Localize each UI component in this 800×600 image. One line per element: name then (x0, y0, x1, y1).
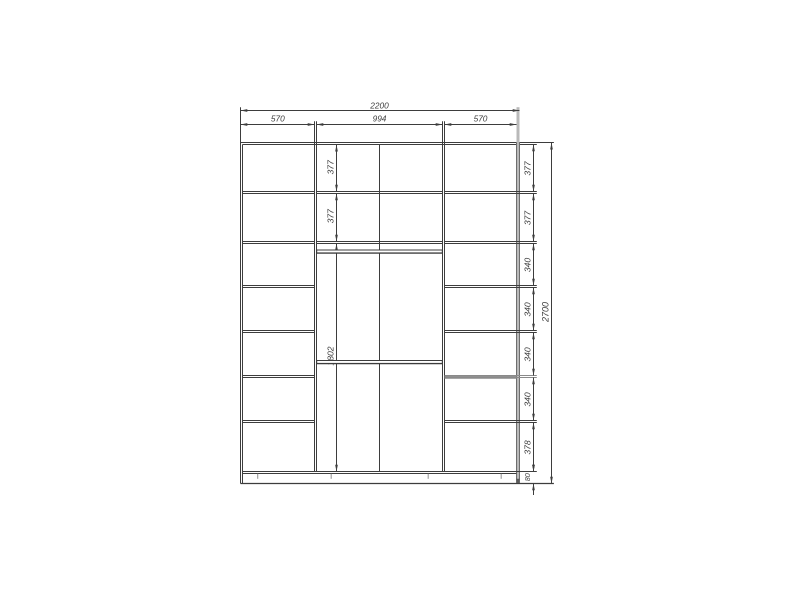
svg-text:570: 570 (474, 114, 488, 124)
svg-text:340: 340 (523, 347, 533, 362)
svg-text:340: 340 (523, 302, 533, 317)
svg-text:378: 378 (523, 440, 533, 455)
svg-text:340: 340 (523, 392, 533, 407)
svg-text:2200: 2200 (369, 100, 389, 110)
svg-text:80: 80 (523, 473, 532, 481)
svg-text:570: 570 (271, 114, 285, 124)
svg-text:340: 340 (523, 258, 533, 273)
svg-text:2700: 2700 (541, 302, 551, 323)
svg-text:377: 377 (325, 159, 335, 175)
svg-text:377: 377 (523, 210, 533, 226)
svg-text:994: 994 (373, 114, 387, 124)
svg-text:377: 377 (523, 160, 533, 176)
svg-text:377: 377 (325, 208, 335, 224)
